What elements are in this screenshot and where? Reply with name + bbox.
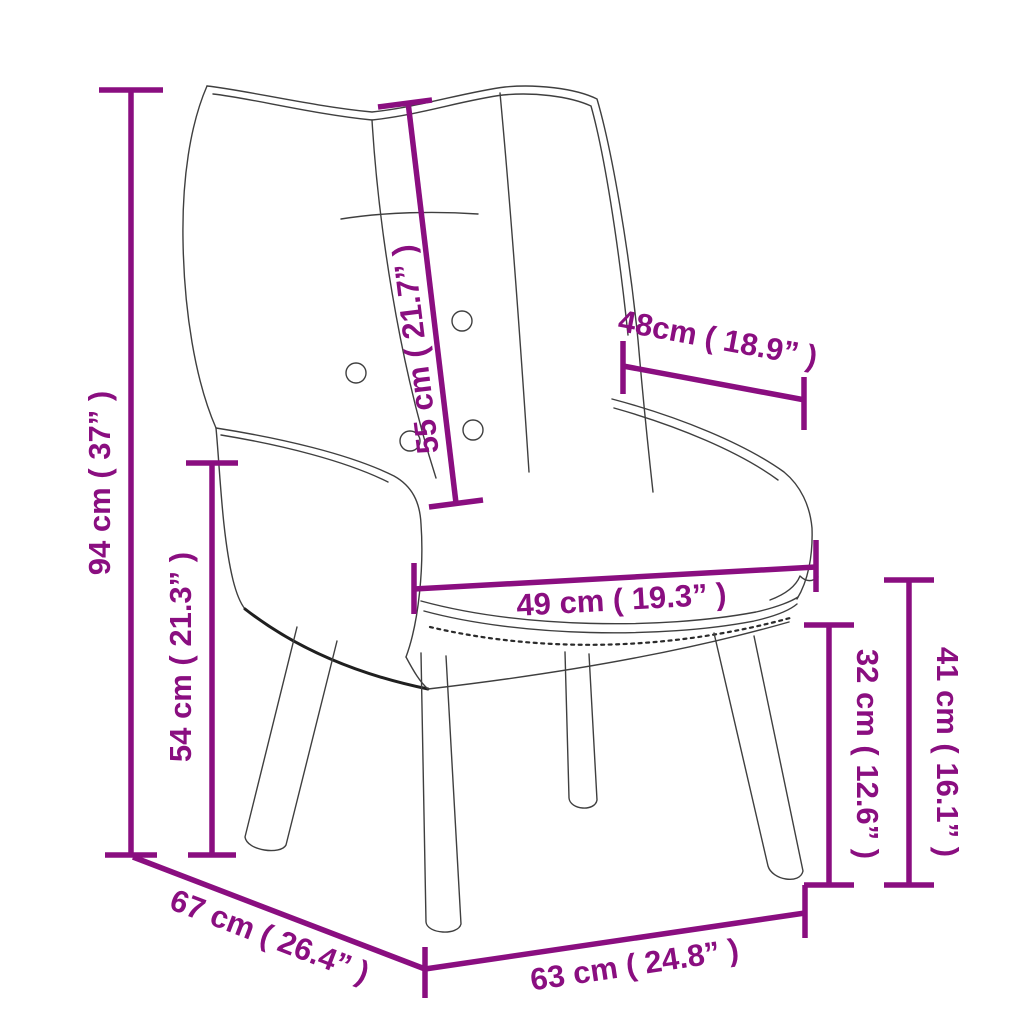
back-right-leg	[565, 652, 597, 808]
chair-right-wing-seam	[500, 93, 529, 472]
back-left-leg	[421, 653, 461, 932]
dim-label-seat-height: 32 cm ( 12.6” )	[850, 649, 885, 859]
dim-label-armrest-height: 41 cm ( 16.1” )	[930, 647, 965, 857]
tufting-button	[452, 311, 472, 331]
left-armrest-piping	[221, 435, 388, 482]
seat-underside	[428, 622, 789, 689]
chair-mid-back-seam	[341, 212, 478, 219]
front-left-leg	[245, 627, 337, 851]
dim-label-back-to-seat: 54 cm ( 21.3” )	[163, 552, 198, 762]
left-armrest-top	[216, 428, 422, 657]
dim-label-overall-height: 94 cm ( 37” )	[82, 391, 117, 575]
front-right-leg	[714, 633, 803, 879]
dim-label-armrest-depth: 48cm ( 18.9” )	[616, 303, 821, 374]
diagram-canvas: 94 cm ( 37” ) 54 cm ( 21.3” ) 55 cm ( 21…	[0, 0, 1024, 1024]
dimension-lines	[99, 90, 934, 998]
dim-label-overall-width: 63 cm ( 24.8” )	[528, 932, 741, 998]
left-armrest-side	[216, 428, 245, 609]
tufting-button	[346, 363, 366, 383]
seat-stitch-line	[430, 618, 790, 645]
dim-line-armrest-height	[884, 580, 934, 885]
right-armrest-piping	[614, 408, 778, 480]
chair-drawing	[183, 86, 818, 932]
left-armrest-bottom	[245, 609, 428, 689]
seat-right-curl	[770, 576, 818, 600]
dim-line-seat-height	[804, 625, 854, 885]
chair-back-left-edge	[183, 86, 216, 428]
chair-dimension-diagram: 94 cm ( 37” ) 54 cm ( 21.3” ) 55 cm ( 21…	[0, 0, 1024, 1024]
tufting-button	[463, 420, 483, 440]
